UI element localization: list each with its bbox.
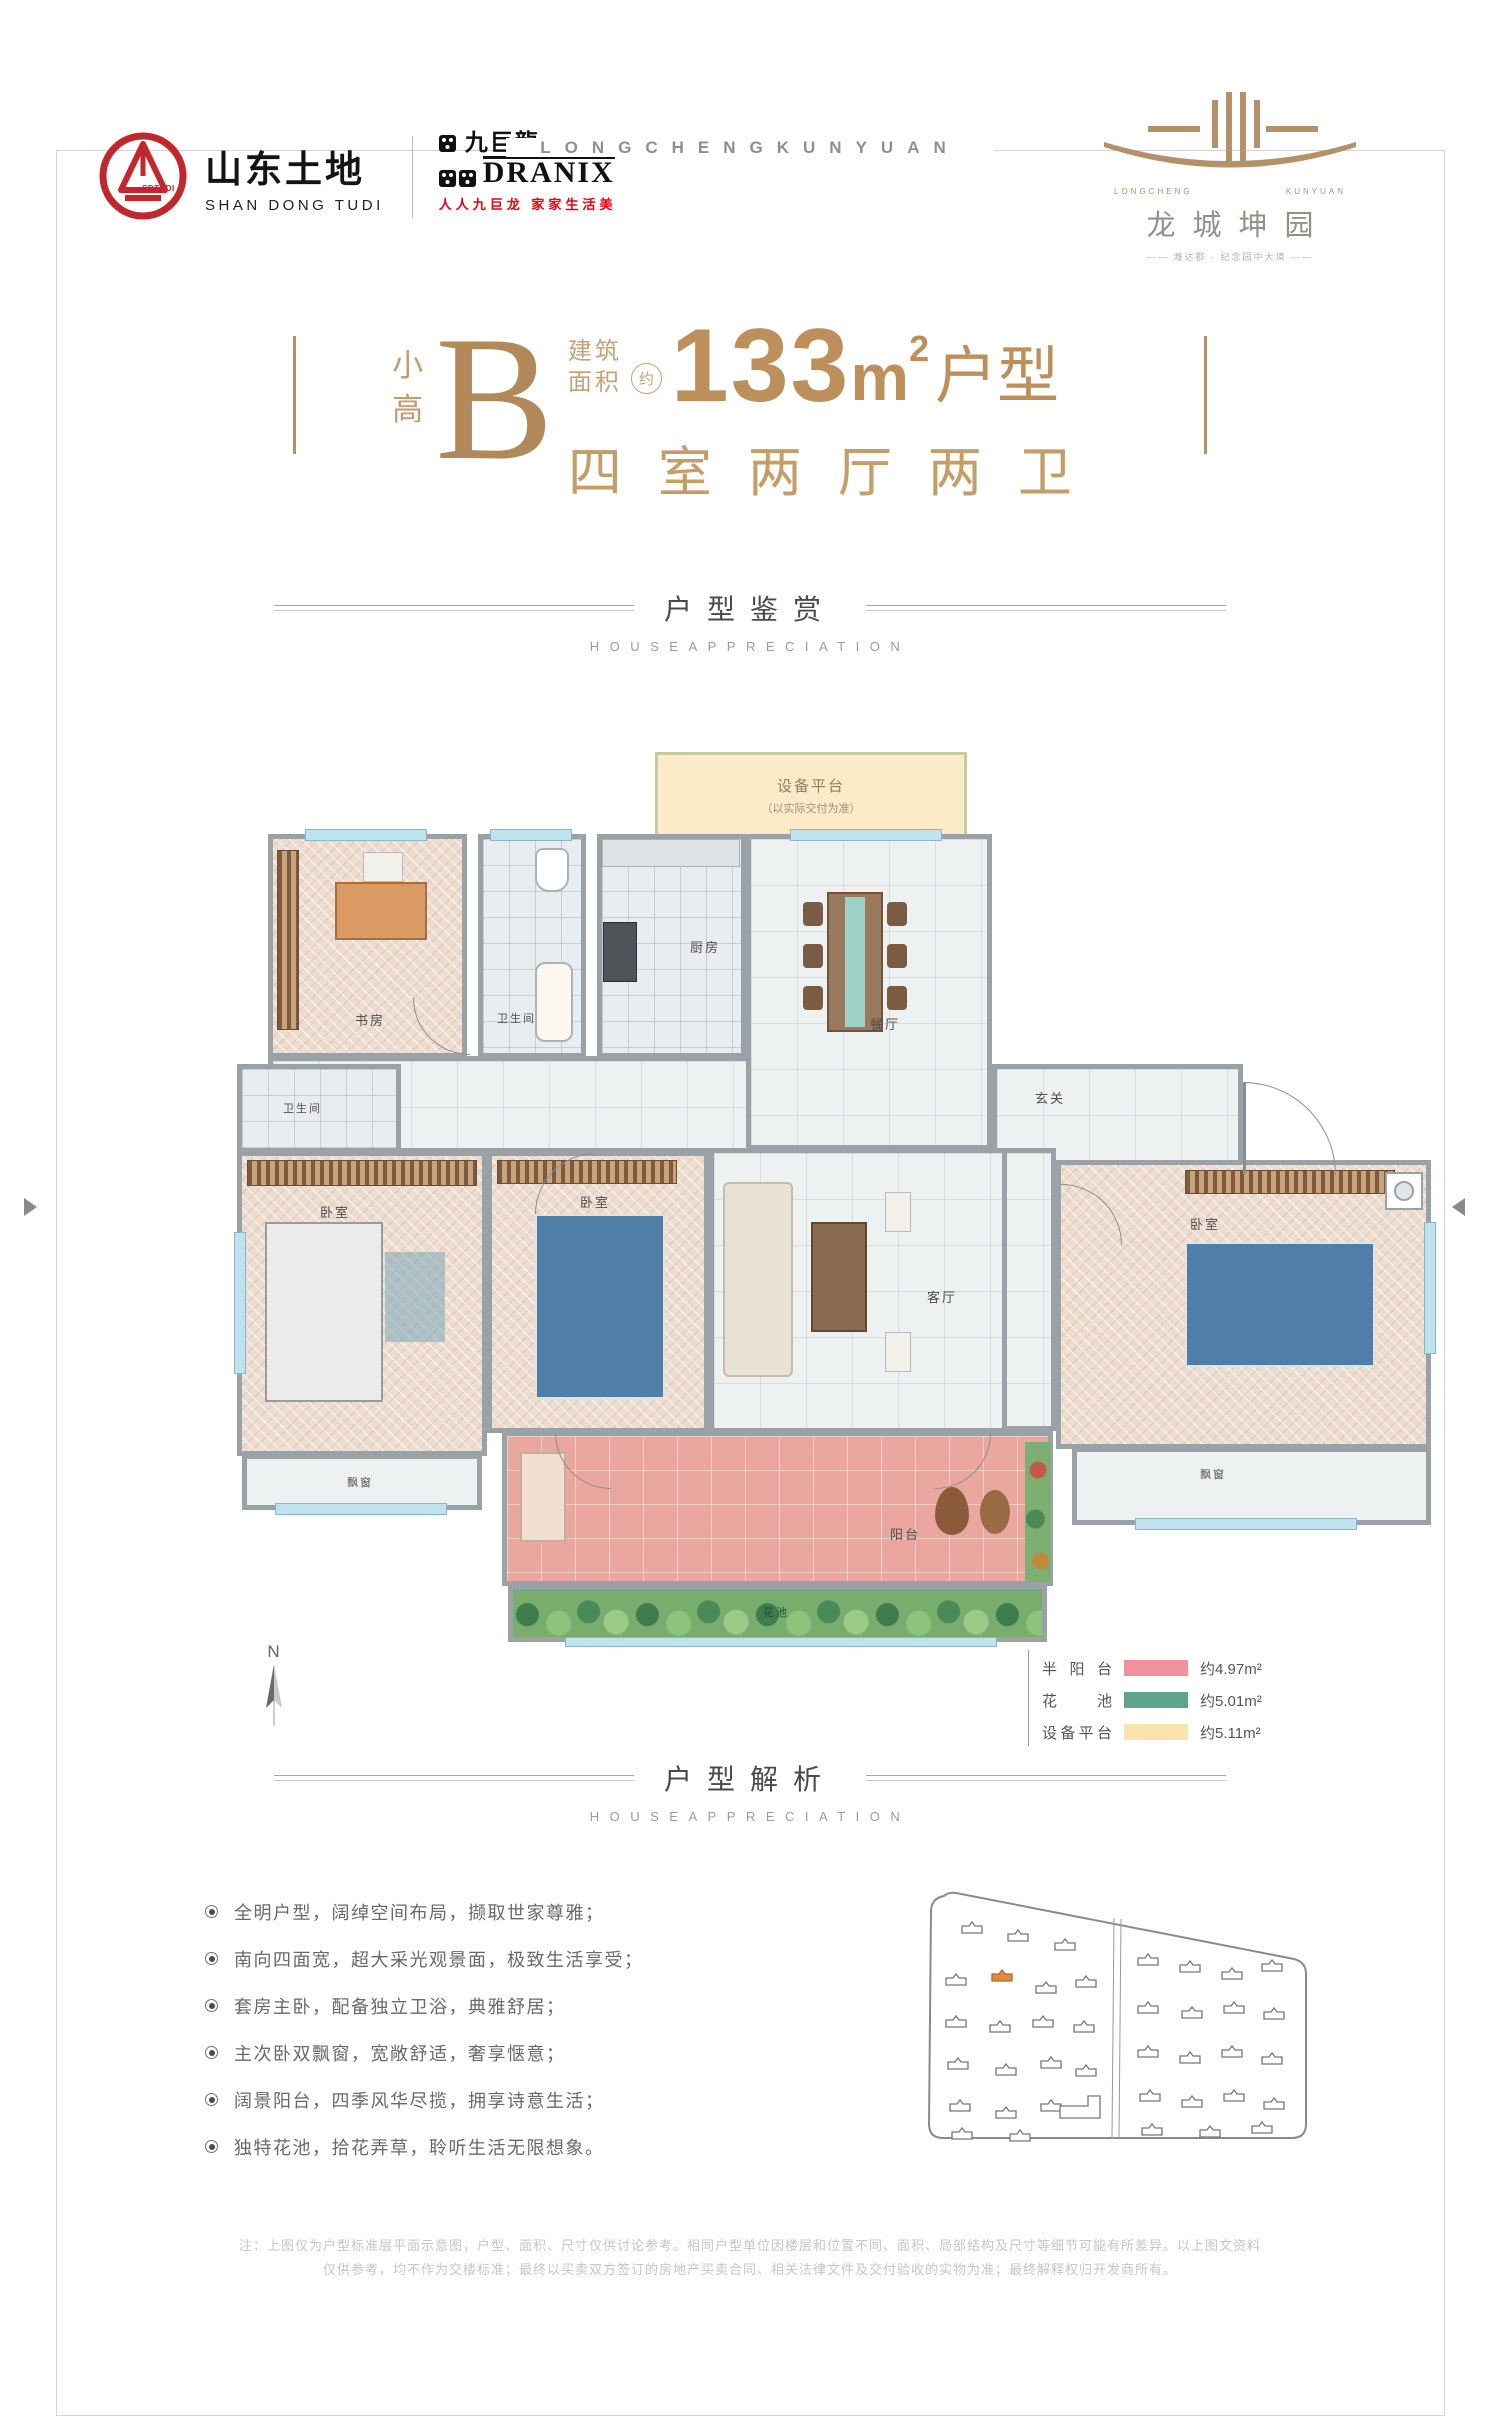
title-suffix: 户型 <box>935 344 1059 410</box>
wardrobe <box>247 1160 477 1186</box>
section-line-left <box>274 1775 634 1781</box>
carousel-arrow-right-icon[interactable] <box>1452 1198 1465 1216</box>
sdtudi-badge-text: SDTUDI <box>142 184 175 193</box>
sdtudi-en: SHAN DONG TUDI <box>205 197 384 214</box>
window <box>790 829 942 841</box>
bathtub <box>535 962 573 1042</box>
dranix-en: DRANIX <box>483 156 615 187</box>
project-en-right: KUNYUAN <box>1286 187 1346 196</box>
chair <box>803 944 823 968</box>
armchair <box>885 1332 911 1372</box>
bed <box>535 1214 665 1399</box>
legend-row: 设备平台 约5.11m² <box>1042 1716 1262 1748</box>
legend-value: 约5.01m² <box>1200 1690 1262 1711</box>
chair <box>803 986 823 1010</box>
compass-n-label: N <box>244 1642 304 1662</box>
bullet-icon <box>205 2093 218 2106</box>
project-en-left: LONGCHENG <box>1114 187 1193 196</box>
project-emblem-icon <box>1100 92 1360 180</box>
list-item: 阔景阳台，四季风华尽揽，拥享诗意生活； <box>205 2076 644 2123</box>
room-bay-right <box>1072 1447 1431 1525</box>
chair <box>887 944 907 968</box>
frame-top-title: LONGCHENGKUNYUAN <box>0 138 1500 158</box>
label-dining: 餐厅 <box>870 1014 900 1033</box>
feature-text: 独特花池，拾花弄草，聆听生活无限想象。 <box>234 2134 605 2160</box>
carousel-arrow-left-icon[interactable] <box>24 1198 37 1216</box>
disclaimer: 注：上图仅为户型标准层平面示意图，户型、面积、尺寸仅供讨论参考。相同户型单位因楼… <box>110 2234 1390 2282</box>
bed-throw <box>385 1252 445 1342</box>
section-line-left <box>274 605 634 611</box>
bullet-icon <box>205 1905 218 1918</box>
toilet <box>535 848 569 892</box>
project-en-row: LONGCHENG KUNYUAN <box>1114 187 1346 196</box>
lounge-chair <box>520 1452 566 1542</box>
armchair <box>885 1192 911 1232</box>
dranix-square-icon <box>459 170 476 187</box>
project-tagline: —— 潍达郡 · 纪念园中大境 —— <box>1085 250 1375 263</box>
section-line-right <box>866 1775 1226 1781</box>
legend-label: 设备平台 <box>1042 1722 1112 1743</box>
label-balcony: 阳台 <box>890 1524 920 1543</box>
title-row1: 建筑 面积 约 133 m 2 户型 <box>568 322 1108 410</box>
desk <box>335 882 427 940</box>
label-kitchen: 厨房 <box>690 937 720 956</box>
label-study: 书房 <box>355 1010 385 1029</box>
stove <box>603 922 637 982</box>
list-item: 主次卧双飘窗，宽敞舒适，奢享惬意； <box>205 2029 644 2076</box>
title-right-bar <box>1204 336 1207 454</box>
dranix-row2: DRANIX <box>439 156 617 187</box>
title-area-word2: 面积 <box>568 367 622 398</box>
unit-title: 小 高 B 建筑 面积 约 133 m 2 户型 四室两厅两卫 <box>0 322 1500 507</box>
chair <box>887 902 907 926</box>
label-bedroom-mid: 卧室 <box>580 1192 610 1211</box>
table-runner <box>845 897 865 1027</box>
window <box>1424 1222 1436 1354</box>
disclaimer-line1: 注：上图仅为户型标准层平面示意图，户型、面积、尺寸仅供讨论参考。相同户型单位因楼… <box>110 2234 1390 2258</box>
compass: N <box>244 1642 304 1733</box>
label-bath-left: 卫生间 <box>283 1100 322 1116</box>
feature-text: 套房主卧，配备独立卫浴，典雅舒居； <box>234 1993 566 2019</box>
title-left-bar <box>293 336 296 454</box>
legend-value: 约4.97m² <box>1200 1658 1262 1679</box>
legend-label: 半阳台 <box>1042 1658 1112 1679</box>
title-main: 建筑 面积 约 133 m 2 户型 四室两厅两卫 <box>568 322 1108 507</box>
title-area-label: 建筑 面积 <box>568 336 622 398</box>
section-analysis-cn: 户型解析 <box>664 1758 836 1798</box>
dranix-square-icon <box>439 170 456 187</box>
bullet-icon <box>205 1999 218 2012</box>
title-prefix: 小 高 <box>392 344 423 507</box>
sofa <box>723 1182 793 1377</box>
legend: 半阳台 约4.97m² 花池 约5.01m² 设备平台 约5.11m² <box>1042 1652 1262 1748</box>
feature-text: 阔景阳台，四季风华尽揽，拥享诗意生活； <box>234 2087 605 2113</box>
frame-top-title-text: LONGCHENGKUNYUAN <box>506 138 994 157</box>
bullet-icon <box>205 2140 218 2153</box>
disclaimer-line2: 仅供参考，均不作为交楼标准；最终以买卖双方签订的房地产买卖合同、相关法律文件及交… <box>110 2258 1390 2282</box>
legend-row: 花池 约5.01m² <box>1042 1684 1262 1716</box>
bullet-icon <box>205 1952 218 1965</box>
feature-list: 全明户型，阔绰空间布局，撷取世家尊雅； 南向四面宽，超大采光观景面，极致生活享受… <box>205 1888 644 2170</box>
title-area-number: 133 <box>671 322 851 410</box>
section-analysis: 户型解析 HOUSEAPPRECIATION <box>0 1758 1500 1824</box>
chair <box>803 902 823 926</box>
legend-swatch-half-balcony <box>1124 1660 1188 1676</box>
bookshelf <box>277 850 299 1030</box>
section-analysis-lines: 户型解析 <box>0 1758 1500 1798</box>
label-bedroom-right: 卧室 <box>1190 1214 1220 1233</box>
legend-row: 半阳台 约4.97m² <box>1042 1652 1262 1684</box>
title-area-word1: 建筑 <box>568 336 622 367</box>
coffee-table <box>811 1222 867 1332</box>
list-item: 独特花池，拾花弄草，聆听生活无限想象。 <box>205 2123 644 2170</box>
legend-swatch-flower-bed <box>1124 1692 1188 1708</box>
legend-value: 约5.11m² <box>1200 1722 1261 1743</box>
bullet-icon <box>205 2046 218 2059</box>
kitchen-counter <box>602 839 740 867</box>
label-bay-right: 飘窗 <box>1200 1466 1226 1482</box>
bed <box>1185 1242 1375 1367</box>
window <box>1135 1518 1357 1530</box>
label-bay-left: 飘窗 <box>347 1474 373 1490</box>
label-flower-bed: 花池 <box>763 1604 789 1620</box>
title-approx-circle: 约 <box>631 363 662 394</box>
planter <box>980 1490 1010 1534</box>
title-unit-letter: B <box>435 328 554 507</box>
section-appreciation: 户型鉴赏 HOUSEAPPRECIATION <box>0 588 1500 654</box>
feature-text: 主次卧双飘窗，宽敞舒适，奢享惬意； <box>234 2040 566 2066</box>
legend-label: 花池 <box>1042 1690 1112 1711</box>
bed <box>265 1222 383 1402</box>
section-appreciation-lines: 户型鉴赏 <box>0 588 1500 628</box>
section-appreciation-cn: 户型鉴赏 <box>664 588 836 628</box>
washer-drum <box>1394 1181 1414 1201</box>
title-rooms-line: 四室两厅两卫 <box>568 428 1108 507</box>
label-living: 客厅 <box>927 1287 957 1306</box>
section-analysis-en: HOUSEAPPRECIATION <box>0 1809 1500 1824</box>
dranix-tagline: 人人九巨龙 家家生活美 <box>439 194 617 213</box>
window <box>305 829 427 841</box>
list-item: 南向四面宽，超大采光观景面，极致生活享受； <box>205 1935 644 1982</box>
window <box>565 1637 997 1647</box>
title-area-unit: m <box>850 344 909 410</box>
poster-page: LONGCHENGKUNYUAN SDTUDI 山东土地 SHAN DONG T… <box>0 0 1500 2432</box>
legend-swatch-equipment <box>1124 1724 1188 1740</box>
feature-text: 全明户型，阔绰空间布局，撷取世家尊雅； <box>234 1899 605 1925</box>
section-appreciation-en: HOUSEAPPRECIATION <box>0 639 1500 654</box>
title-area-power: 2 <box>909 328 929 370</box>
site-plan-thumbnail <box>900 1866 1340 2171</box>
window <box>234 1232 246 1374</box>
list-item: 套房主卧，配备独立卫浴，典雅舒居； <box>205 1982 644 2029</box>
chair <box>887 986 907 1010</box>
entrance-door-arc <box>1243 1082 1336 1175</box>
label-foyer: 玄关 <box>1035 1088 1065 1107</box>
section-line-right <box>866 605 1226 611</box>
label-bedroom-left: 卧室 <box>320 1202 350 1221</box>
equipment-note: （以实际交付为准） <box>658 800 964 816</box>
title-prefix-bottom: 高 <box>392 388 423 432</box>
feature-text: 南向四面宽，超大采光观景面，极致生活享受； <box>234 1946 644 1972</box>
list-item: 全明户型，阔绰空间布局，撷取世家尊雅； <box>205 1888 644 1935</box>
label-bath-top: 卫生间 <box>497 1010 536 1026</box>
flower-strip <box>1025 1442 1051 1582</box>
chair <box>363 852 403 882</box>
project-cn: 龙城坤园 <box>1085 202 1375 244</box>
window <box>490 829 572 841</box>
equipment-label: 设备平台 <box>658 775 964 796</box>
title-prefix-top: 小 <box>392 344 423 388</box>
legend-rule <box>1028 1650 1029 1746</box>
project-logo: LONGCHENG KUNYUAN 龙城坤园 —— 潍达郡 · 纪念园中大境 —… <box>1085 92 1375 263</box>
floor-plan: 设备平台 （以实际交付为准） <box>235 752 1435 1644</box>
compass-needle-icon <box>261 1662 287 1728</box>
window <box>275 1503 447 1515</box>
